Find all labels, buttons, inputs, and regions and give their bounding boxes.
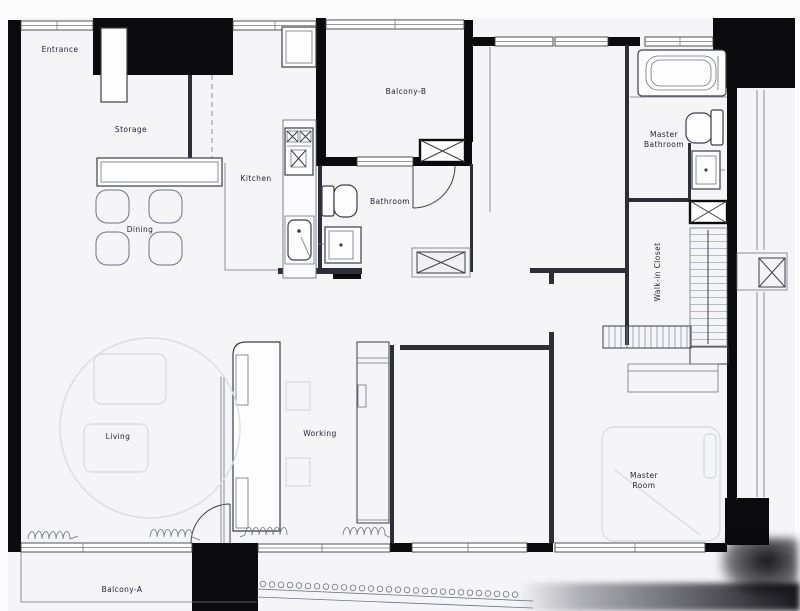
wardrobe-icon [603,326,691,348]
paper-background [8,18,795,611]
room-label-storage: Storage [115,125,147,135]
shaft-icon [412,248,470,277]
balcony-b-top-window [326,20,464,29]
sink-icon [692,151,725,189]
toilet-icon [686,110,723,145]
room-label-balcony-a: Balcony-A [102,585,143,595]
room-label-master-room: Master Room [621,471,667,491]
stove-icon [285,128,313,175]
walk-in-closet-rail [690,228,727,346]
shoe-cabinet [97,158,222,186]
shaft-icon [690,201,727,223]
room-label-master-bathroom: Master Bathroom [638,130,690,150]
room-label-working: Working [303,429,336,439]
room-label-entrance: Entrance [42,45,79,55]
entrance-cabinet [101,28,127,102]
floor-plan: Entrance Storage Kitchen Dining Balcony-… [0,0,800,611]
master-bottom-window [555,543,705,552]
bathtub-icon [638,50,726,96]
toilet-icon [322,185,357,217]
room-label-dining: Dining [127,225,154,235]
living-bottom-window [21,543,192,552]
sink-icon [318,227,361,263]
kitchen-sink-icon [285,216,314,264]
shadow-smudge-corner [720,538,798,596]
balcony-a-door-window [258,544,390,552]
room-label-bathroom: Bathroom [370,197,410,207]
room-label-walk-in-closet: Walk-in Closet [653,243,663,302]
top-window-1 [495,37,553,46]
room-label-kitchen: Kitchen [241,174,272,184]
room-label-living: Living [106,432,131,442]
shaft-icon [420,140,465,162]
bathroom-top-window [357,157,413,166]
room-label-balcony-b: Balcony-B [386,87,427,97]
master-bath-top-window [645,37,713,46]
top-window-2 [555,37,608,46]
entrance-door-window [21,21,93,30]
fridge-icon [282,27,316,67]
bedroom-bottom-window [412,543,527,552]
